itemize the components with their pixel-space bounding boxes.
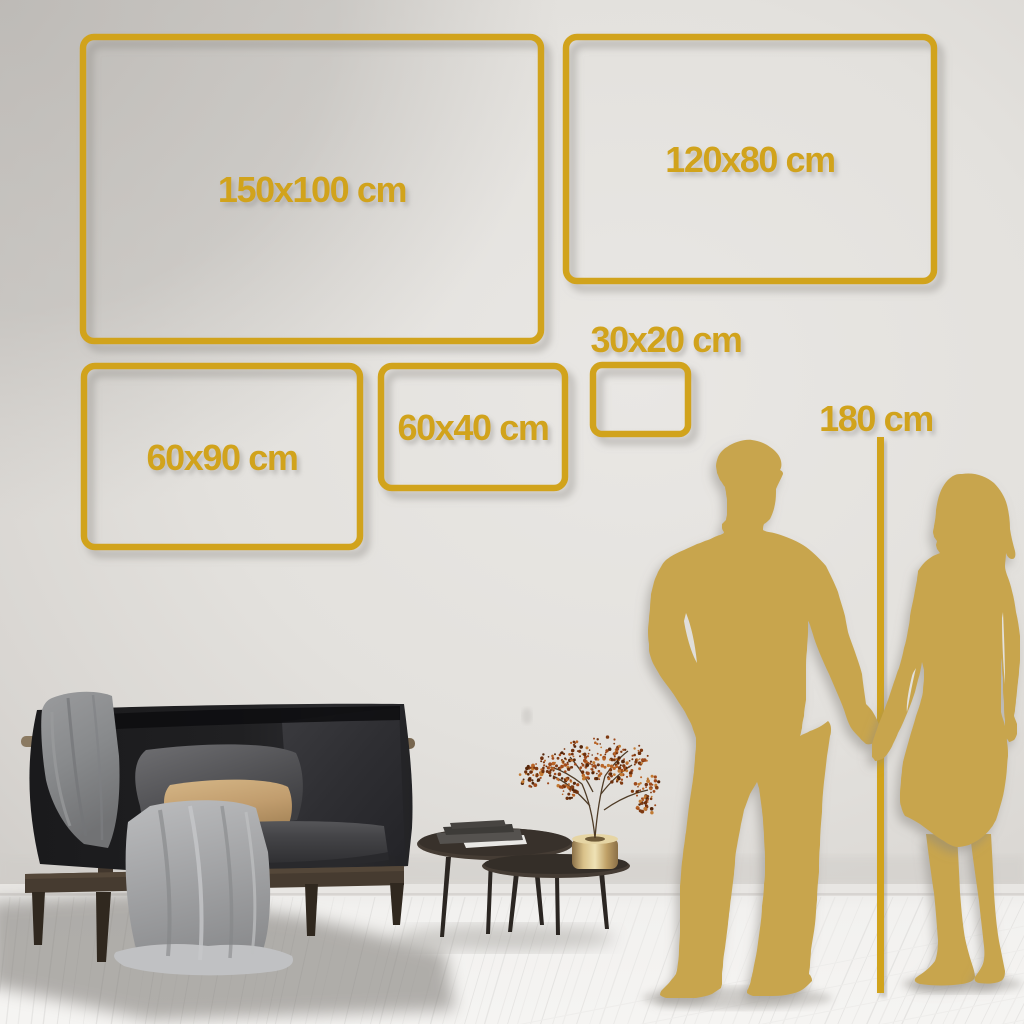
svg-text:180 cm: 180 cm <box>819 398 933 439</box>
svg-text:60x90 cm: 60x90 cm <box>147 437 298 478</box>
svg-text:60x40 cm: 60x40 cm <box>398 407 549 448</box>
svg-text:150x100 cm: 150x100 cm <box>218 169 406 210</box>
svg-text:30x20 cm: 30x20 cm <box>591 319 742 360</box>
svg-text:120x80 cm: 120x80 cm <box>665 139 835 180</box>
